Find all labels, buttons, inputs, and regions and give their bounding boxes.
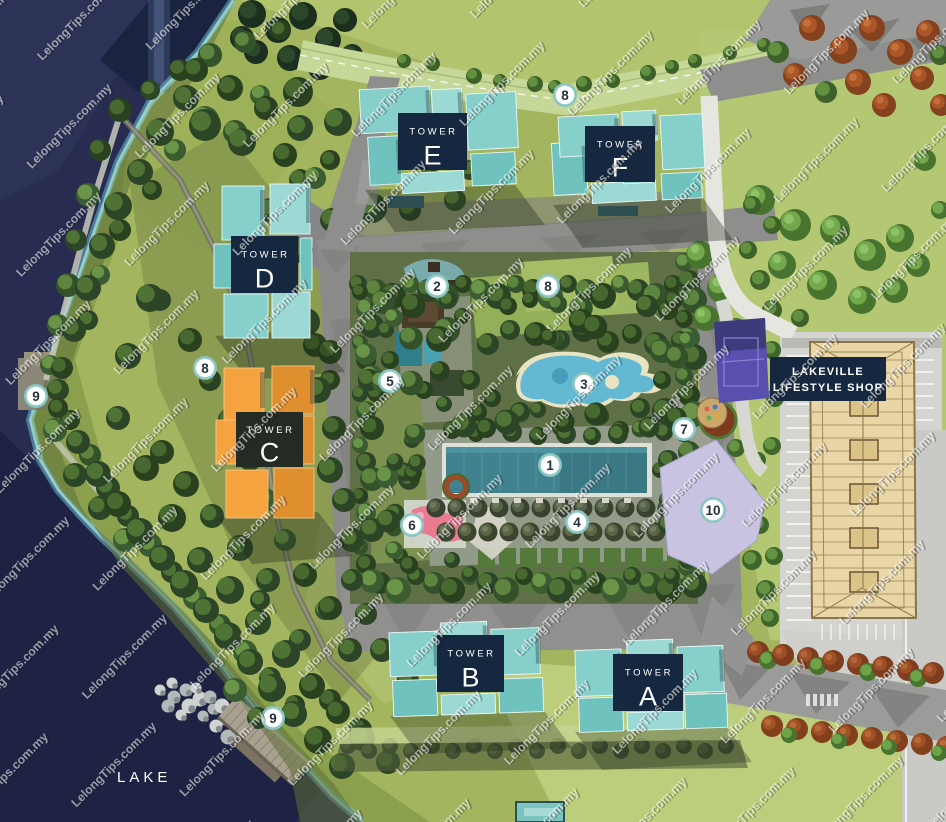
svg-text:8: 8 — [201, 361, 209, 376]
svg-text:1: 1 — [546, 458, 554, 473]
svg-text:4: 4 — [573, 515, 581, 530]
svg-text:TOWER: TOWER — [241, 250, 289, 261]
svg-text:TOWER: TOWER — [625, 668, 673, 679]
svg-text:9: 9 — [32, 389, 40, 404]
svg-text:10: 10 — [705, 503, 720, 518]
svg-text:LAKE: LAKE — [117, 769, 171, 786]
svg-text:8: 8 — [561, 88, 569, 103]
svg-text:8: 8 — [544, 279, 552, 294]
svg-text:TOWER: TOWER — [447, 649, 495, 660]
svg-text:B: B — [461, 662, 479, 692]
svg-text:C: C — [260, 438, 280, 468]
svg-text:2: 2 — [433, 279, 441, 294]
svg-text:6: 6 — [408, 518, 416, 533]
svg-text:TOWER: TOWER — [409, 127, 457, 138]
svg-text:D: D — [255, 263, 275, 293]
svg-text:7: 7 — [680, 422, 688, 437]
svg-text:9: 9 — [269, 711, 277, 726]
